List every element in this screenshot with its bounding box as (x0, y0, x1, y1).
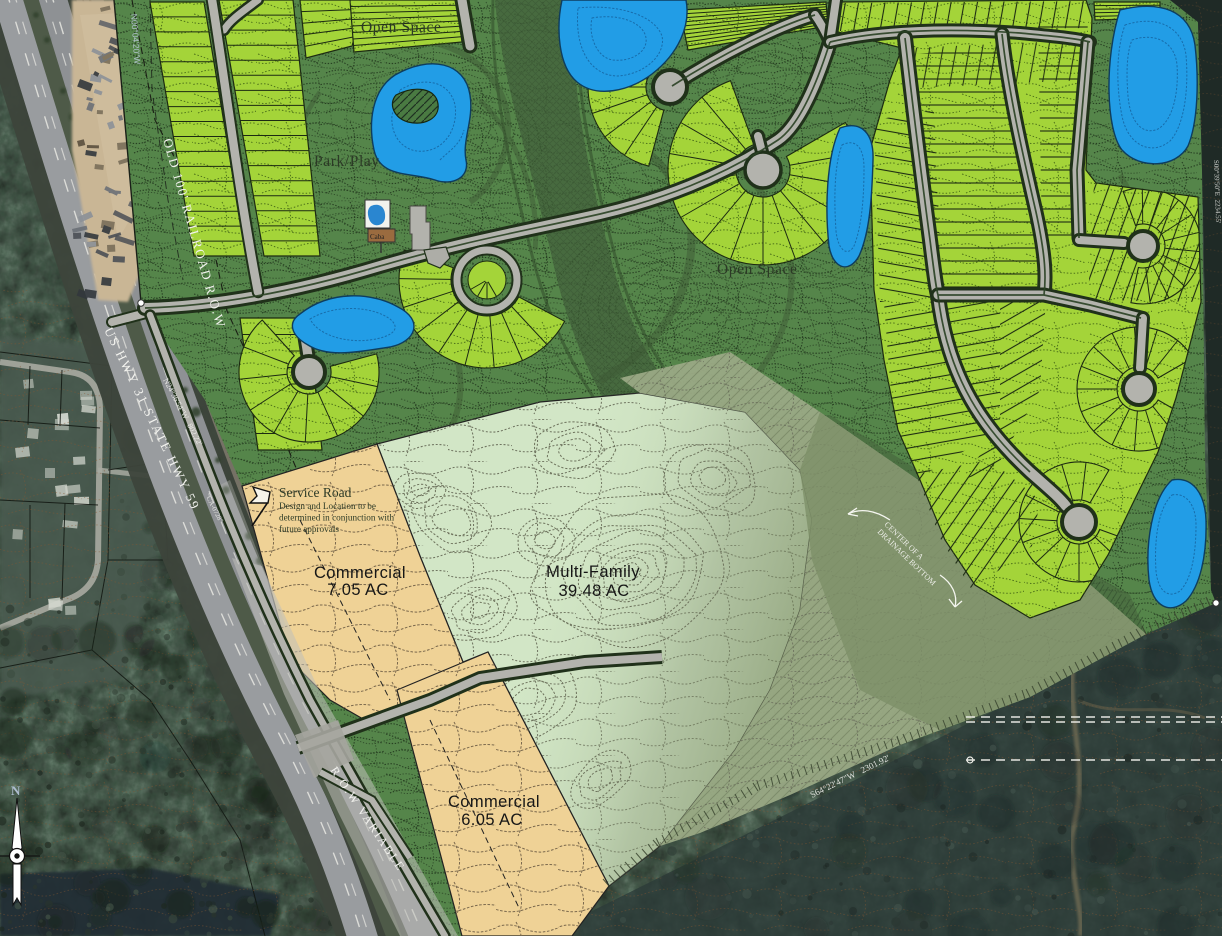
svg-text:Caba: Caba (370, 233, 385, 241)
svg-text:Commercial: Commercial (448, 793, 540, 811)
svg-text:Park/Play: Park/Play (314, 153, 380, 170)
svg-text:Open Space: Open Space (361, 19, 441, 36)
svg-text:Design and Location to be: Design and Location to be (279, 501, 376, 511)
svg-text:N: N (11, 783, 21, 798)
svg-text:Open Space: Open Space (717, 261, 797, 278)
svg-text:future approvals: future approvals (279, 524, 339, 534)
svg-text:7.05 AC: 7.05 AC (327, 581, 389, 599)
svg-text:6.05 AC: 6.05 AC (461, 811, 523, 829)
svg-text:39.48 AC: 39.48 AC (558, 582, 629, 600)
svg-text:determined in conjunction with: determined in conjunction with (279, 513, 394, 523)
svg-text:Service Road: Service Road (279, 485, 352, 500)
svg-text:Commercial: Commercial (314, 564, 406, 582)
svg-text:Multi-Family: Multi-Family (546, 563, 640, 581)
